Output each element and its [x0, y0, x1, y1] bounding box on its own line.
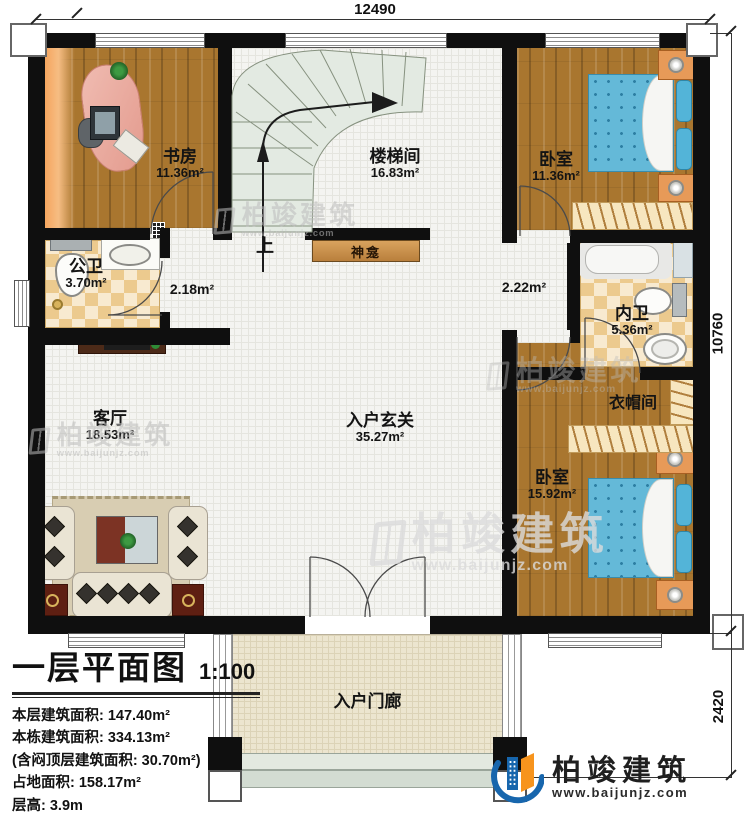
bed-bottom-blanket [642, 479, 673, 577]
wall-segment [502, 330, 517, 343]
room-name: 卧室 [502, 468, 602, 487]
room-label-porch: 入户门廊 [300, 692, 435, 711]
shrine-shelf: 神龛 [312, 240, 420, 262]
cloak-rack-bottom [568, 425, 694, 453]
lamp-icon [668, 57, 684, 73]
wall-segment [693, 33, 710, 634]
pillow [177, 516, 198, 537]
pillow [139, 583, 160, 604]
pillow [118, 583, 139, 604]
pillow [76, 583, 97, 604]
corner-pier [10, 23, 47, 57]
up-text: 上 [250, 236, 280, 256]
room-area: 15.92m² [502, 487, 602, 502]
room-area: 18.53m² [60, 428, 160, 443]
wall-segment [570, 230, 693, 243]
coffee-table [96, 516, 158, 564]
room-area: 16.83m² [345, 166, 445, 181]
room-label-living: 客厅 18.53m² [60, 409, 160, 443]
sofa-bottom [72, 572, 172, 618]
pillow [44, 516, 65, 537]
shrine-label: 神龛 [351, 242, 381, 261]
shower-glass [673, 241, 693, 278]
wall-segment [160, 228, 170, 258]
bed-bottom-pillow-1 [676, 484, 692, 526]
stat-line: 本层建筑面积: 147.40m² [12, 705, 260, 727]
sink-basin-inner [651, 339, 679, 359]
wall-segment [45, 228, 150, 240]
corner-pier [686, 23, 718, 57]
end-table [172, 584, 204, 616]
stat-line: 层高: 3.9m [12, 795, 260, 817]
room-name: 公卫 [36, 257, 136, 276]
porch-step [233, 770, 502, 788]
window [95, 33, 205, 48]
wall-segment [567, 243, 580, 330]
room-name: 客厅 [60, 409, 160, 428]
wall-segment [570, 330, 580, 343]
room-area: 11.36m² [506, 169, 606, 184]
dimension-width: 12490 [330, 1, 420, 18]
window [14, 280, 30, 327]
wall-segment [305, 228, 430, 240]
room-name: 衣帽间 [583, 395, 683, 413]
room-name: 内卫 [582, 304, 682, 323]
divider [12, 692, 260, 695]
window [548, 633, 662, 648]
floor-drain [52, 299, 63, 310]
window [545, 33, 660, 48]
table-plant [120, 533, 136, 549]
porch-step [233, 753, 502, 770]
company-logo: 柏竣建筑 www.baijunjz.com [490, 747, 692, 809]
lamp-icon [668, 180, 684, 196]
plan-scale: 1:100 [199, 659, 255, 685]
room-label-public-bath: 公卫 3.70m² [36, 257, 136, 291]
dimension-tick [71, 7, 82, 18]
dimension-line-right [731, 33, 732, 778]
dimension-porch-height: 2420 [710, 679, 727, 734]
toilet-tank [50, 239, 92, 251]
wall-segment [502, 48, 517, 243]
wall-segment [517, 367, 585, 380]
logo-website: www.baijunjz.com [552, 786, 692, 800]
room-name: 楼梯间 [345, 147, 445, 166]
room-area: 2.18m² [152, 282, 232, 298]
stat-line: 占地面积: 158.17m² [12, 772, 260, 794]
room-name: 入户玄关 [330, 411, 430, 430]
lamp-icon [667, 587, 683, 603]
room-label-bedroom-top: 卧室 11.36m² [506, 150, 606, 184]
table-ring [182, 594, 195, 607]
wall-segment [28, 328, 230, 345]
stat-line: 本栋建筑面积: 334.13m² [12, 727, 260, 749]
wardrobe-rack [572, 202, 693, 230]
floor-plan-canvas: 神龛 [0, 0, 750, 823]
desk-plant [110, 62, 128, 80]
stair-up-label: 上 [250, 236, 280, 256]
wall-segment [640, 367, 693, 380]
room-area: 5.36m² [582, 323, 682, 338]
armchair-right [168, 506, 208, 580]
room-name: 卧室 [506, 150, 606, 169]
title-block: 一层平面图 1:100 本层建筑面积: 147.40m² 本栋建筑面积: 334… [12, 641, 260, 817]
room-label-private-bath: 内卫 5.36m² [582, 304, 682, 338]
nightstand [658, 174, 694, 202]
logo-company-name: 柏竣建筑 [552, 756, 692, 786]
plan-title: 一层平面图 [12, 641, 187, 689]
pillow [44, 546, 65, 567]
room-area: 2.22m² [484, 280, 564, 296]
room-label-stairwell: 楼梯间 16.83m² [345, 147, 445, 181]
room-name: 入户门廊 [300, 692, 435, 711]
pillow [177, 546, 198, 567]
room-label-study: 书房 11.36m² [130, 147, 230, 181]
room-area: 35.27m² [330, 430, 430, 445]
room-name: 书房 [130, 147, 230, 166]
divider [12, 697, 260, 698]
dimension-height: 10760 [710, 304, 727, 364]
stat-line: (含闷顶层建筑面积: 30.70m²) [12, 750, 260, 772]
room-label-foyer: 入户玄关 35.27m² [330, 411, 430, 445]
wall-segment [28, 616, 305, 634]
bathtub-inner [585, 245, 659, 274]
room-area: 3.70m² [36, 276, 136, 291]
dimension-line-top [35, 19, 710, 20]
study-sunlight-glow [45, 48, 75, 228]
bed-top-pillow-1 [676, 80, 692, 122]
pillow [97, 583, 118, 604]
room-label-cloakroom: 衣帽间 [583, 395, 683, 413]
wall-segment [430, 616, 710, 634]
logo-building-icon [490, 747, 544, 809]
bed-top-pillow-2 [676, 128, 692, 170]
wall-segment [218, 48, 232, 240]
nightstand [656, 580, 694, 610]
monitor-screen [95, 112, 115, 134]
window [285, 33, 447, 48]
room-label-bedroom-bottom: 卧室 15.92m² [502, 468, 602, 502]
bed-bottom-pillow-2 [676, 531, 692, 573]
table-ring [46, 594, 59, 607]
lamp-icon [667, 451, 683, 467]
hall-area-left: 2.18m² [152, 282, 232, 298]
bed-top-blanket [642, 75, 673, 171]
hall-area-right: 2.22m² [484, 280, 564, 296]
wall-segment [213, 228, 232, 240]
room-area: 11.36m² [130, 166, 230, 181]
